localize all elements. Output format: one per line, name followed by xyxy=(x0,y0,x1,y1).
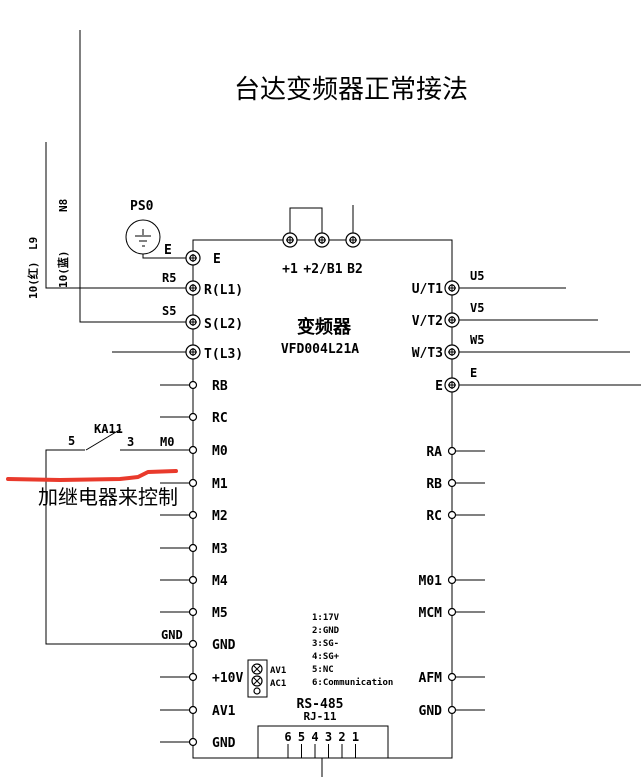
label-right-m01: M01 xyxy=(419,574,443,589)
label-left-s: S(L2) xyxy=(204,317,243,332)
relay-name: KA11 xyxy=(94,422,123,436)
rs485-pinout-4: 4:SG+ xyxy=(312,652,340,662)
label-top-plus1: +1 xyxy=(282,262,298,277)
label-left-m2: M2 xyxy=(212,509,228,524)
terminal-left-rc xyxy=(190,414,197,421)
rj11-pin-5: 5 xyxy=(298,730,305,744)
red-annotation-line xyxy=(8,471,176,480)
label-left-m3: M3 xyxy=(212,542,228,557)
label-left-gnd1: GND xyxy=(212,638,236,653)
label-left-m5: M5 xyxy=(212,606,228,621)
terminal-right-gnd xyxy=(449,707,456,714)
terminal-top-b2 xyxy=(346,233,360,247)
wire-label-w5: W5 xyxy=(470,333,484,347)
label-left-rc: RC xyxy=(212,411,228,426)
diagram-title: 台达变频器正常接法 xyxy=(234,75,468,105)
label-plug-av1: AV1 xyxy=(270,666,286,676)
rs485-pinout-6: 6:Communication xyxy=(312,677,393,688)
terminal-left-gnd2 xyxy=(190,739,197,746)
label-right-rb: RB xyxy=(426,477,442,492)
terminal-top-plus1 xyxy=(283,233,297,247)
device-name: 变频器 xyxy=(297,316,352,338)
wiring-diagram-canvas: 台达变频器正常接法 变频器 VFD004L21A L9 10(红) N8 10(… xyxy=(0,0,641,780)
label-left-gnd2: GND xyxy=(212,736,236,751)
terminal-right-m01 xyxy=(449,577,456,584)
terminal-right-afm xyxy=(449,674,456,681)
wire-label-r5: R5 xyxy=(162,271,176,285)
terminal-left-t xyxy=(186,345,200,359)
rj11-pin-2: 2 xyxy=(338,730,345,744)
label-top-b2: B2 xyxy=(347,262,363,277)
label-left-10v: +10V xyxy=(212,671,243,686)
terminal-left-av1 xyxy=(190,707,197,714)
terminal-left-m5 xyxy=(190,609,197,616)
relay-pin-right: 3 xyxy=(127,435,134,449)
wire-label-u5: U5 xyxy=(470,269,484,283)
supply-label-n8: N8 xyxy=(57,199,70,212)
label-left-rb: RB xyxy=(212,379,228,394)
rj11-pin-3: 3 xyxy=(325,730,332,744)
wire-label-v5: V5 xyxy=(470,301,484,315)
device-model: VFD004L21A xyxy=(281,342,359,357)
relay-note-text: 加继电器来控制 xyxy=(38,485,178,509)
label-right-ra: RA xyxy=(426,445,442,460)
label-left-m1: M1 xyxy=(212,477,228,492)
supply-label-l9: L9 xyxy=(27,237,40,250)
label-plug-ac1: AC1 xyxy=(270,679,286,689)
terminal-right-rc xyxy=(449,512,456,519)
earth-wire-label: E xyxy=(164,243,172,258)
rj11-pin-4: 4 xyxy=(311,730,318,744)
wiring-diagram: 台达变频器正常接法 变频器 VFD004L21A L9 10(红) N8 10(… xyxy=(0,0,641,780)
wire-label-e: E xyxy=(470,366,477,380)
label-left-e: E xyxy=(213,252,221,267)
terminal-left-m2 xyxy=(190,512,197,519)
terminal-right-v xyxy=(445,313,459,327)
terminal-left-r xyxy=(186,281,200,295)
label-right-afm: AFM xyxy=(419,671,443,686)
earth-source-label: PS0 xyxy=(130,199,154,214)
earth-source-circle xyxy=(126,220,160,254)
supply-label-l-color: 10(红) xyxy=(26,262,40,300)
terminal-left-rb xyxy=(190,382,197,389)
label-left-m0: M0 xyxy=(212,444,228,459)
terminal-left-m1 xyxy=(190,480,197,487)
relay-pin-left: 5 xyxy=(68,434,75,448)
label-right-mcm: MCM xyxy=(419,606,443,621)
wire-label-s5: S5 xyxy=(162,304,176,318)
terminal-left-m4 xyxy=(190,577,197,584)
label-left-t: T(L3) xyxy=(204,347,243,362)
terminal-right-u xyxy=(445,281,459,295)
label-right-e: E xyxy=(435,379,443,394)
label-left-m4: M4 xyxy=(212,574,228,589)
rs485-pinout-1: 1:17V xyxy=(312,613,340,623)
terminal-right-e xyxy=(445,378,459,392)
rs485-connector-name: RJ-11 xyxy=(303,710,336,723)
rj11-connector-outline xyxy=(258,726,388,758)
label-left-r: R(L1) xyxy=(204,283,243,298)
terminal-right-rb xyxy=(449,480,456,487)
wire-label-m0: M0 xyxy=(160,435,174,449)
terminal-right-w xyxy=(445,345,459,359)
wire-label-gnd: GND xyxy=(161,628,183,642)
terminal-left-gnd1 xyxy=(190,641,197,648)
right-terminal-stubs xyxy=(455,451,485,710)
rs485-pinout-3: 3:SG- xyxy=(312,639,339,649)
terminal-left-10v xyxy=(190,674,197,681)
rj11-pin-1: 1 xyxy=(352,730,359,744)
terminal-right-ra xyxy=(449,448,456,455)
label-top-plus2b1: +2/B1 xyxy=(303,262,342,277)
terminal-left-s xyxy=(186,315,200,329)
terminal-right-mcm xyxy=(449,609,456,616)
terminal-left-m0 xyxy=(190,447,197,454)
dc-bus-jumper xyxy=(290,208,322,233)
terminal-top-plus2b1 xyxy=(315,233,329,247)
terminal-left-m3 xyxy=(190,545,197,552)
rs485-pinout-2: 2:GND xyxy=(312,626,340,636)
label-right-u: U/T1 xyxy=(412,282,443,297)
label-left-av1: AV1 xyxy=(212,704,236,719)
label-right-gnd: GND xyxy=(419,704,443,719)
supply-label-n-color: 10(蓝) xyxy=(56,251,70,289)
label-right-rc: RC xyxy=(426,509,442,524)
label-right-w: W/T3 xyxy=(412,346,443,361)
terminal-left-e xyxy=(186,251,200,265)
label-right-v: V/T2 xyxy=(412,314,443,329)
rj11-pin-6: 6 xyxy=(284,730,291,744)
rs485-pinout-5: 5:NC xyxy=(312,665,334,675)
